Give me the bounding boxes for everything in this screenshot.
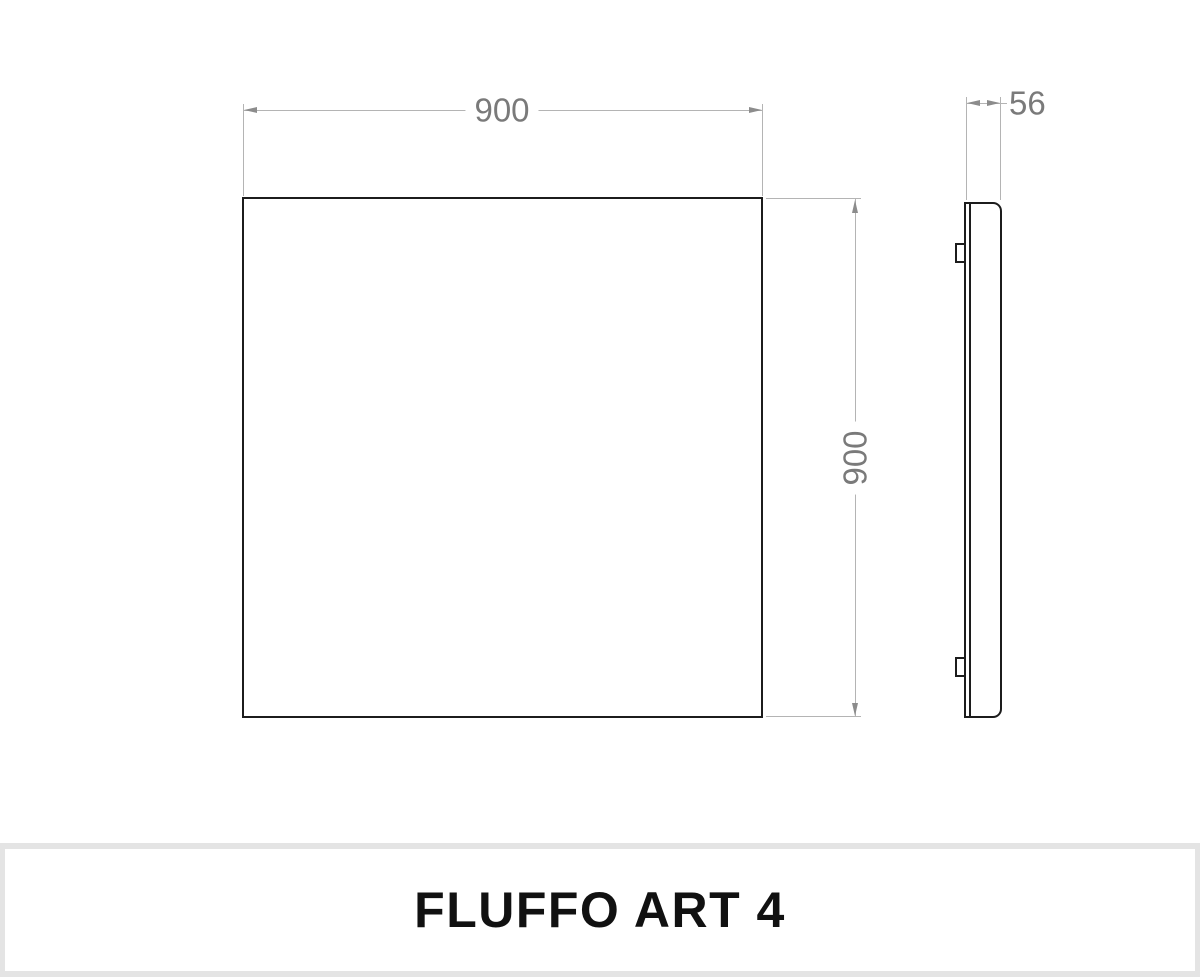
width-dimension-label: 900: [465, 94, 538, 127]
front-view-panel-outline: [242, 197, 763, 718]
product-dimension-drawing: 900 900 56 FLUFFO ART 4: [0, 0, 1200, 977]
dimension-arrow-icon: [987, 100, 1000, 106]
dimension-arrow-icon: [852, 200, 858, 213]
product-title-bar: FLUFFO ART 4: [0, 843, 1200, 977]
dimension-arrow-icon: [967, 100, 980, 106]
height-dimension-label: 900: [839, 421, 872, 494]
side-view-front-face-line: [969, 204, 971, 716]
depth-dimension-label: 56: [1009, 87, 1046, 120]
extension-line: [966, 97, 967, 200]
extension-line: [762, 104, 763, 196]
product-title-box: FLUFFO ART 4: [5, 849, 1195, 971]
dimension-arrow-icon: [852, 703, 858, 716]
dimension-arrow-icon: [244, 107, 257, 113]
product-title: FLUFFO ART 4: [414, 881, 786, 939]
extension-line: [766, 198, 861, 199]
extension-line: [766, 716, 861, 717]
extension-line: [1000, 97, 1001, 200]
dimension-arrow-icon: [749, 107, 762, 113]
extension-line: [243, 104, 244, 196]
